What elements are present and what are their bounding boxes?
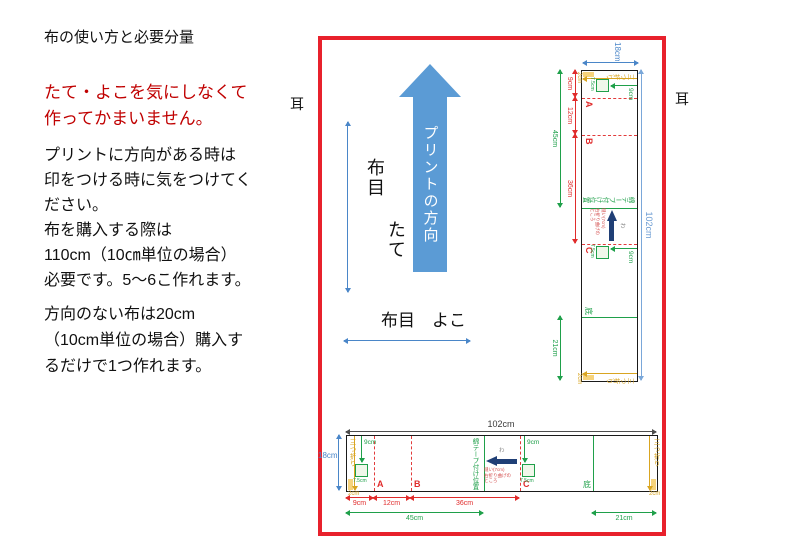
pocket1-depth-arrow [611, 85, 637, 86]
pocket2-square [596, 246, 609, 259]
dim-45cm-arrow [346, 512, 483, 513]
fold-note-line: ところ [484, 478, 511, 484]
dim-45cm-label: 45cm [551, 70, 558, 207]
dim-36cm-arrow [575, 134, 576, 243]
fold-label-right: 三つ折り [606, 374, 634, 384]
instruction-line: 印をつける時に気をつけてく [44, 168, 252, 193]
cut-line-b [411, 436, 412, 491]
instruction-line: （10cm単位の場合）購入す [44, 328, 243, 354]
mark-a-label: A [377, 479, 384, 489]
fold-label-right: 三つ折り [650, 439, 660, 467]
fold-note-line: 縫い(7cm) [600, 208, 606, 235]
fold-direction-arrow-shaft [610, 221, 615, 241]
selvage-left-label: 耳 [290, 94, 304, 114]
fold-direction-arrow [486, 456, 517, 466]
dim-9cm-arrow [346, 497, 373, 498]
tape-position-label: 綿テープ付け位置 [469, 438, 479, 490]
dim-21cm-label: 21cm [551, 316, 558, 380]
dim-12cm-label: 12cm [566, 97, 573, 134]
dim-9cm-label: 9cm [566, 70, 573, 97]
strip-width-dimension-label: 102cm [644, 70, 654, 380]
instruction-line: 必要です。5～6こ作れます。 [44, 268, 252, 293]
instruction-line: るだけで1つ作れます。 [44, 354, 243, 380]
bottom-fold-line [593, 436, 594, 491]
pocket1-depth-arrow [361, 436, 362, 462]
dim-45cm-arrow [560, 70, 561, 207]
fold-note-line: ところ [589, 208, 595, 235]
dim-21cm-arrow [592, 512, 656, 513]
grain-horizontal-arrow [344, 340, 470, 341]
instruction-line: 110cm（10㎝単位の場合） [44, 243, 252, 268]
pocket1-size-label: 7.5cm [353, 478, 367, 484]
bottom-label: 底 [583, 307, 594, 315]
pocket2-size-label: 7.5cm [520, 478, 534, 484]
fold-label-left: 三つ折り [346, 439, 356, 467]
instruction-line: ださい。 [44, 193, 252, 218]
fold-note: 縫い(7cm) 右折り曲げの ところ [484, 467, 511, 484]
dim-9cm-arrow [575, 70, 576, 97]
selvage-right-label: 耳 [675, 89, 689, 109]
pocket1-size-label: 7.5cm [589, 77, 595, 91]
pocket2-square [522, 464, 535, 477]
fold-mark-label: わ [499, 446, 505, 454]
grain-vertical-arrow [347, 122, 348, 292]
fold-direction-arrowhead [607, 210, 617, 221]
instructions-paragraph-2: 方向のない布は20cm （10cm単位の場合）購入す るだけで1つ作れます。 [44, 302, 243, 380]
fabric-strip-diagram: 102cm 18cm 三つ折り 三つ折り A B C 綿テープ付け位置 底 9c… [548, 46, 652, 390]
dim-36cm-arrow [410, 497, 519, 498]
page-title: 布の使い方と必要分量 [44, 26, 194, 47]
dim-21cm-label: 21cm [592, 515, 656, 522]
instruction-line: プリントに方向がある時は [44, 143, 252, 168]
fold-direction-arrow [607, 210, 617, 241]
strip-height-dimension-label: 18cm [318, 451, 338, 460]
dim-12cm-arrow [575, 97, 576, 134]
grain-horizontal-label: 布目 よこ [381, 306, 466, 331]
strip-height-dimension-arrow [583, 62, 638, 63]
pocket1-square [355, 464, 368, 477]
page: 布の使い方と必要分量 たて・よこを気にしなくて 作ってかまいません。 プリントに… [0, 0, 800, 553]
strip-height-dimension-arrow [338, 435, 339, 490]
mark-b-label: B [414, 479, 421, 489]
instructions-paragraph-1: プリントに方向がある時は 印をつける時に気をつけてく ださい。 布を購入する際は… [44, 143, 252, 293]
red-note-line: たて・よこを気にしなくて [44, 80, 248, 106]
print-direction-label-wrap: プリントの方向 [413, 98, 447, 270]
fabric-strip-outline: 三つ折り 三つ折り A B C 綿テープ付け位置 底 9cm 7.5cm 9cm… [581, 70, 638, 382]
fold-direction-arrow-shaft [497, 459, 517, 464]
dim-12cm-label: 12cm [373, 500, 410, 507]
allowance-right-label: 2cm [649, 491, 660, 497]
pocket2-depth-label: 9cm [527, 439, 539, 446]
strip-diagram-vertical: 102cm 18cm 三つ折り 三つ折り A B C 綿テープ付け位置 底 9c… [548, 46, 652, 390]
mark-b-label: B [584, 138, 594, 145]
strip-width-dimension-arrow [641, 70, 642, 380]
grain-vertical-label-1: 布目 [362, 158, 388, 198]
cut-line-b [582, 135, 637, 136]
pocket1-depth-label: 9cm [364, 439, 376, 446]
fold-direction-arrowhead [486, 456, 497, 466]
strip-diagram-horizontal: 102cm 18cm 三つ折り 三つ折り A B C 綿テープ付け位置 底 9c… [322, 421, 666, 525]
red-note: たて・よこを気にしなくて 作ってかまいません。 [44, 80, 248, 132]
strip-width-dimension-arrow [346, 431, 656, 432]
red-note-line: 作ってかまいません。 [44, 106, 248, 132]
strip-width-dimension-label: 102cm [346, 419, 656, 429]
pocket1-square [596, 79, 609, 92]
pocket2-depth-label: 9cm [627, 251, 634, 263]
fold-label-left: 三つ折り [606, 70, 634, 80]
dim-21cm-arrow [560, 316, 561, 380]
pocket2-size-label: 7.5cm [589, 244, 595, 258]
grain-vertical-label-2: たて [383, 220, 409, 260]
dim-36cm-label: 36cm [410, 500, 519, 507]
bottom-label: 底 [583, 479, 591, 490]
pocket1-depth-label: 9cm [627, 88, 634, 100]
tape-position-label: 綿テープ付け位置 [583, 193, 635, 203]
fabric-strip-diagram: 102cm 18cm 三つ折り 三つ折り A B C 綿テープ付け位置 底 9c… [322, 421, 666, 525]
bottom-fold-line [582, 317, 637, 318]
fold-note-line: 右折り曲げの [595, 208, 601, 235]
dim-12cm-arrow [373, 497, 410, 498]
print-direction-label: プリントの方向 [420, 125, 441, 244]
dim-9cm-label: 9cm [346, 500, 373, 507]
fabric-strip-outline: 三つ折り 三つ折り A B C 綿テープ付け位置 底 9cm 7.5cm 9cm… [346, 435, 658, 492]
pocket2-depth-arrow [611, 248, 637, 249]
pocket2-depth-arrow [524, 436, 525, 462]
mark-a-label: A [584, 101, 594, 108]
print-direction-arrowhead [399, 64, 461, 97]
dim-45cm-label: 45cm [346, 515, 483, 522]
instruction-line: 布を購入する際は [44, 218, 252, 243]
fold-mark-label: わ [619, 223, 627, 229]
dim-36cm-label: 36cm [566, 134, 573, 243]
allowance-right-label: 2cm [576, 373, 582, 384]
instruction-line: 方向のない布は20cm [44, 302, 243, 328]
strip-height-dimension-label: 18cm [613, 42, 622, 62]
fold-note: 縫い(7cm) 右折り曲げの ところ [589, 208, 606, 235]
